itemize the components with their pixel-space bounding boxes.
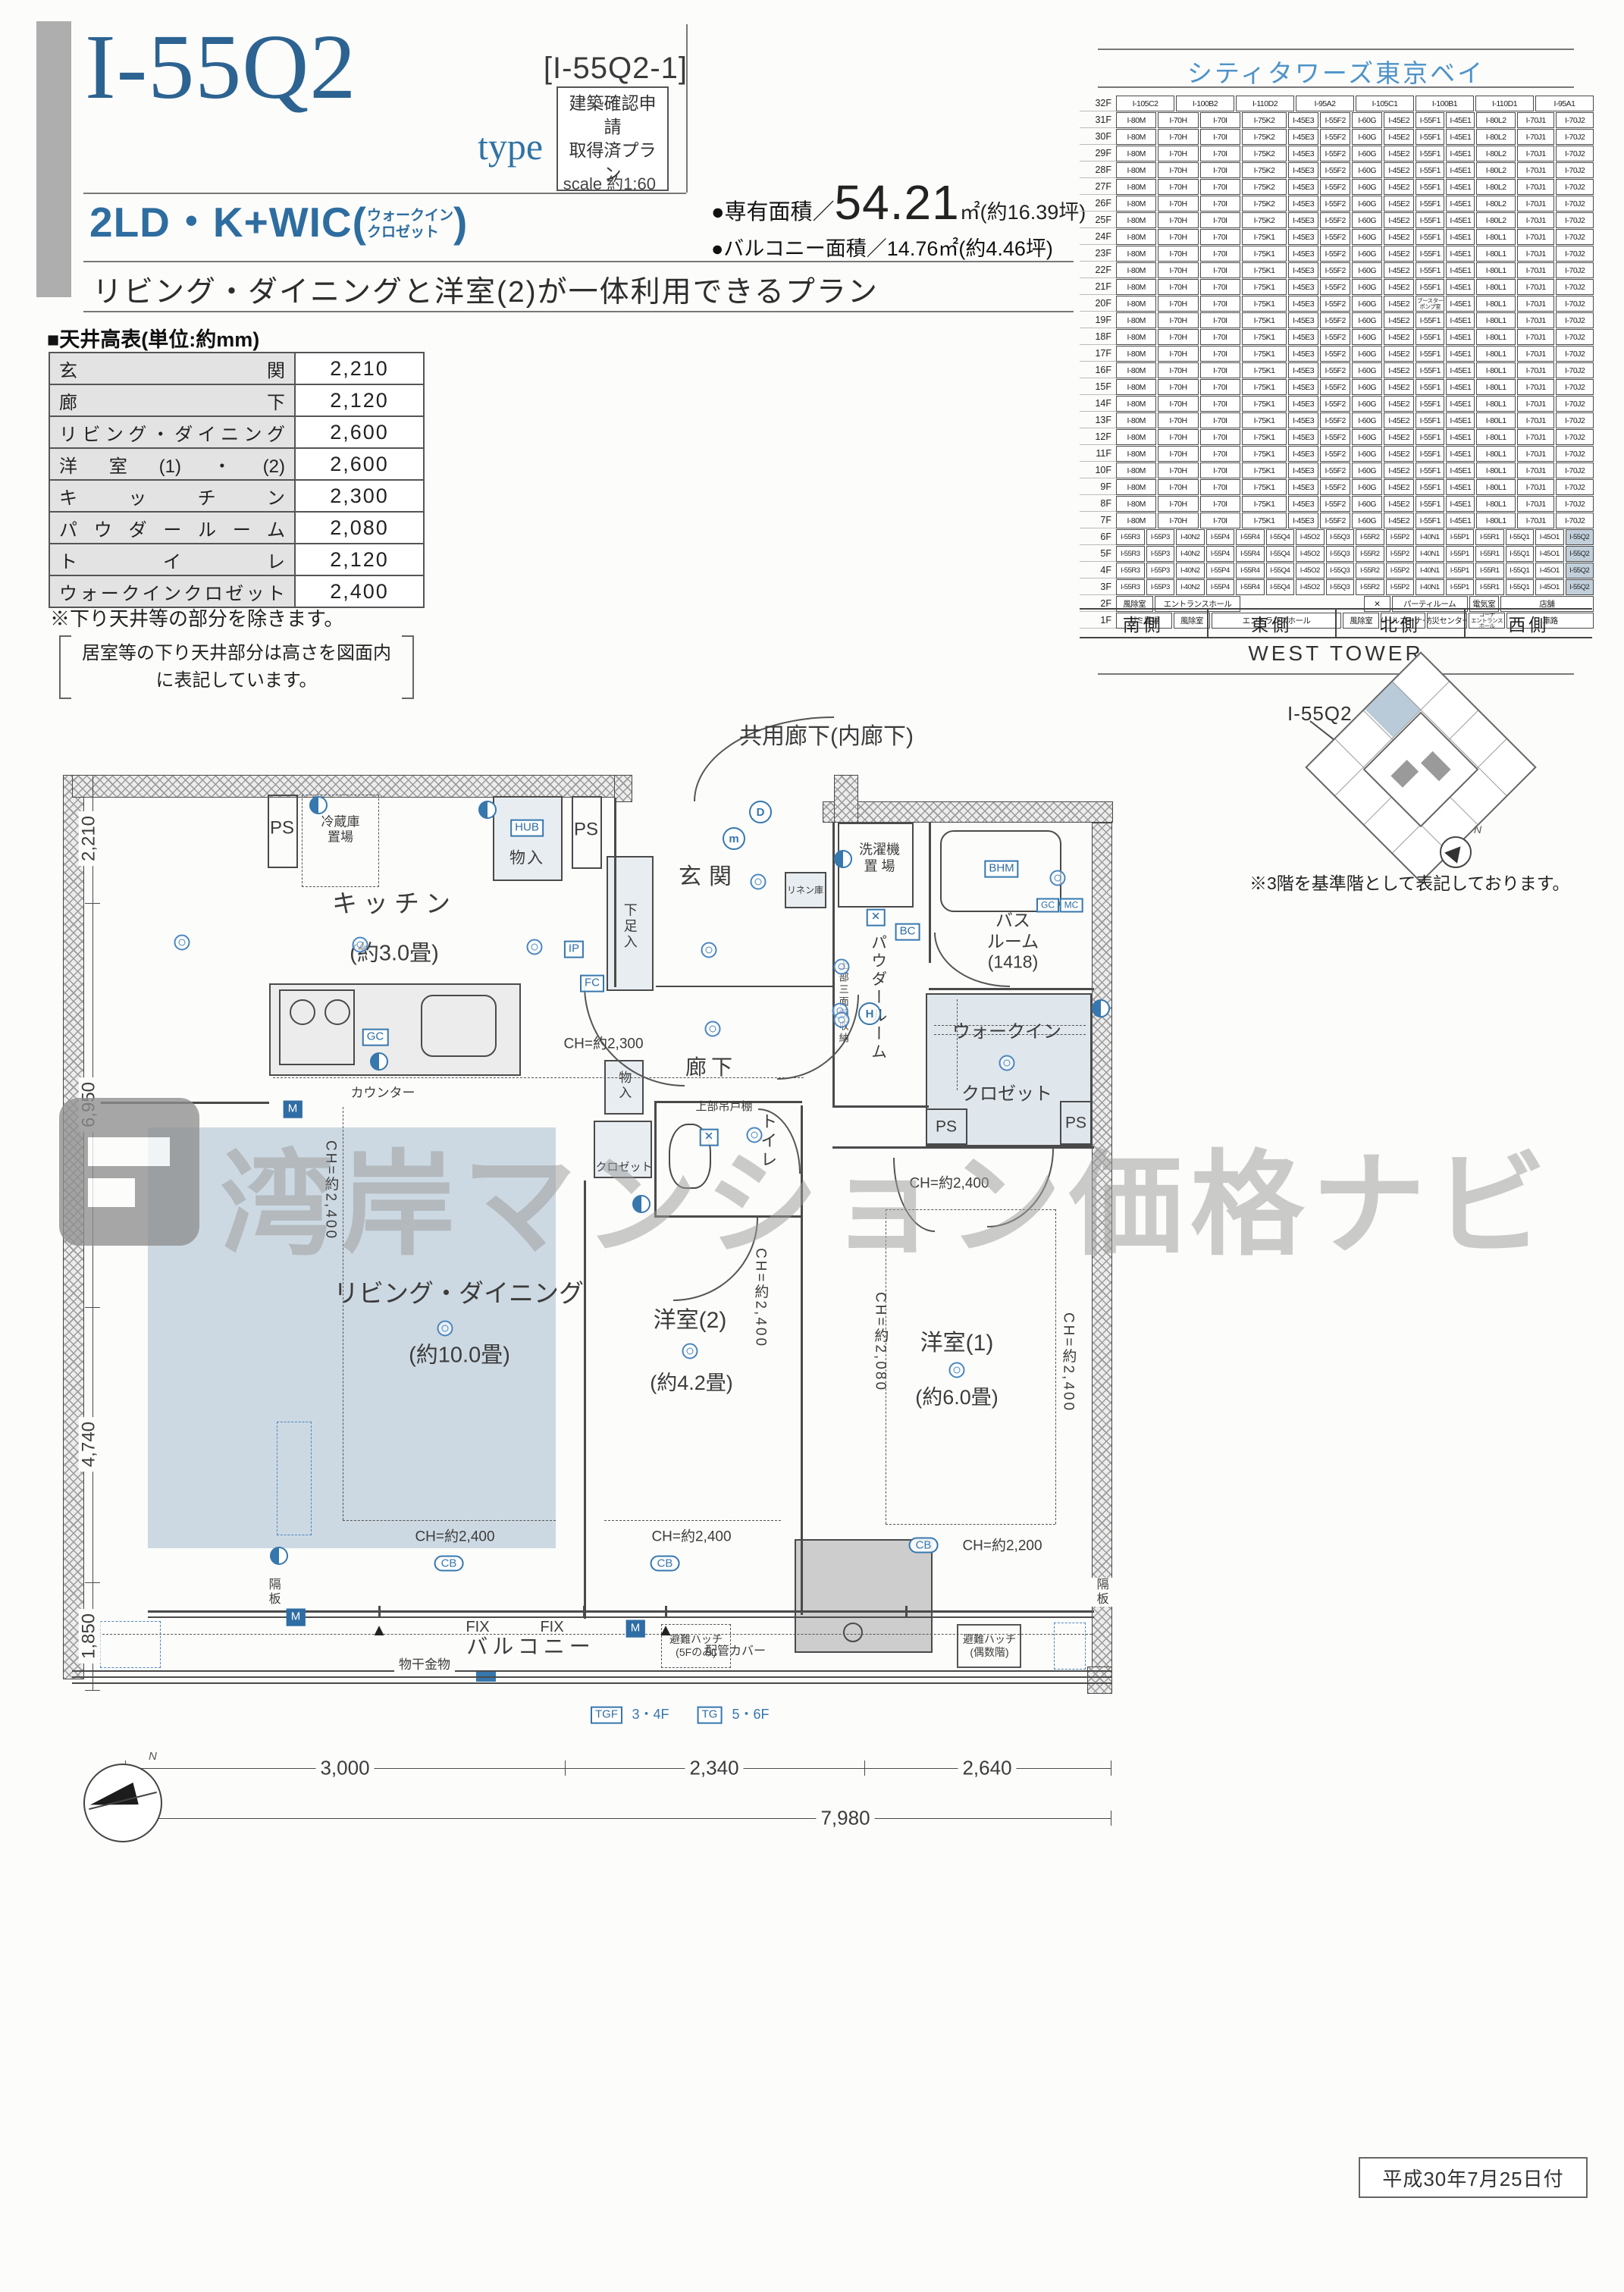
electric-outlet-icon (478, 801, 497, 819)
plan-label: 上部吊戸棚 (695, 1100, 752, 1114)
burner (324, 999, 350, 1025)
plan-label: パウダールーム (868, 934, 887, 1061)
plan-label: ▲ (371, 1620, 387, 1640)
plan-line (125, 1818, 1111, 1819)
plan-label: 物入 (616, 1071, 631, 1101)
burner (290, 999, 315, 1025)
plan-label: CH=約2,200 (962, 1538, 1042, 1556)
plan-line (654, 1101, 657, 1218)
plan-label: 3・4F (632, 1707, 669, 1723)
downlight-icon (999, 1055, 1015, 1071)
equipment-label-box: GC (1036, 898, 1059, 913)
plan-label: (約4.2畳) (650, 1371, 733, 1395)
downlight-icon (1050, 870, 1066, 886)
downlight-icon (527, 939, 543, 955)
equipment-label-box: TG (698, 1707, 723, 1724)
plan-dashed-line (1055, 1209, 1056, 1524)
equipment-label-box: HUB (510, 820, 544, 837)
downlight-icon (353, 937, 368, 953)
plan-label: CH=約2,400 (651, 1529, 731, 1547)
door-swing-arc (893, 1158, 935, 1232)
electric-outlet-icon (309, 796, 328, 814)
plan-line (72, 1670, 1112, 1672)
plan-label: トイレ (757, 1113, 777, 1170)
wall-hatched (1092, 823, 1112, 1678)
plan-label: 下足入 (621, 903, 638, 951)
plan-dashed-line (100, 1621, 161, 1668)
plan-label: PS (936, 1117, 957, 1136)
plan-dashed-line (604, 1520, 781, 1521)
equipment-label-box: GC (362, 1029, 389, 1046)
plan-line (85, 903, 100, 904)
plan-label: 3,000 (315, 1756, 374, 1779)
hub-closet (493, 796, 563, 881)
watermark-logo (59, 1098, 199, 1246)
equipment-label-box: FC (580, 975, 604, 992)
cb-symbol: CB (909, 1538, 939, 1554)
plan-line (1111, 1811, 1111, 1826)
plan-line (832, 1146, 1094, 1149)
plan-label: 2,640 (958, 1756, 1016, 1779)
plan-line (832, 1105, 929, 1108)
electric-outlet-icon (834, 850, 852, 868)
living-dining-shade (148, 1127, 556, 1548)
cb-symbol: CB (651, 1556, 680, 1572)
electric-outlet-icon (1092, 999, 1110, 1017)
downlight-icon (682, 1344, 698, 1359)
plan-label: 避難ハッチ (偶数階) (963, 1633, 1016, 1659)
downlight-icon (701, 942, 717, 958)
plan-label: CH=約2,400 (751, 1248, 769, 1348)
plan-dashed-line (343, 1107, 343, 1520)
plan-line (583, 1606, 585, 1616)
plan-label: PS (574, 820, 598, 842)
plan-label: 洗濯機 置 場 (859, 842, 900, 874)
equipment-label-box: MC (1060, 898, 1083, 913)
plan-dashed-line (277, 1422, 312, 1535)
equipment-label-box: BHM (984, 861, 1018, 878)
balcony-circle (843, 1623, 863, 1642)
plan-label: 物入 (509, 848, 544, 867)
meter-box: M (284, 1101, 303, 1118)
floor-plan: 共用廊下(内廊下)キッチン(約3.0畳)冷蔵庫 置場PS物入PS玄関下足入カウン… (0, 0, 1624, 2292)
downlight-icon (437, 1321, 453, 1337)
downlight-icon (747, 1127, 763, 1143)
equipment-label-box: IP (564, 941, 584, 958)
electric-outlet-icon (270, 1547, 288, 1565)
plan-label: バルコニー (466, 1634, 594, 1660)
plan-label: クロゼット (961, 1084, 1052, 1106)
equipment-label-box: TGF (591, 1707, 622, 1724)
plan-label: 洋室(1) (920, 1330, 994, 1357)
wall-hatched (614, 775, 632, 802)
plan-label: バス ルーム (1418) (987, 911, 1039, 974)
electric-outlet-icon (370, 1052, 388, 1071)
plan-label: リネン庫 (787, 885, 823, 895)
plan-line (85, 1582, 100, 1583)
meter-box: M (626, 1620, 645, 1638)
plan-label: (約6.0畳) (915, 1385, 999, 1409)
plan-dashed-line (886, 1524, 1055, 1525)
plan-compass (83, 1764, 162, 1842)
plan-label: PS (270, 818, 294, 840)
downlight-icon (834, 959, 850, 975)
plan-label: クロゼット (595, 1161, 652, 1174)
plan-dashed-line (343, 1520, 556, 1521)
plan-label: 冷蔵庫 置場 (321, 815, 360, 846)
plan-label: リビング・ダイニング (334, 1278, 584, 1309)
plan-label: 2,340 (685, 1756, 743, 1779)
plan-label: CH=約2,400 (321, 1140, 339, 1240)
plan-label: 隔板 (1089, 1578, 1112, 1607)
plan-dashed-line (957, 999, 958, 1090)
downlight-icon (705, 1021, 721, 1037)
sink (421, 995, 497, 1057)
meter-box: M (287, 1609, 306, 1626)
plan-line (801, 1105, 803, 1615)
plan-label: 4,740 (79, 1417, 101, 1472)
circled-letter-symbol: m (723, 827, 745, 850)
plan-label: CH=約2,080 (871, 1292, 889, 1392)
equipment-label-box: ✕ (700, 1129, 719, 1146)
circled-letter-symbol: D (749, 801, 772, 823)
plan-label: CH=約2,300 (563, 1036, 643, 1054)
plan-line (85, 1307, 100, 1308)
downlight-icon (834, 1012, 850, 1028)
plan-label: 避難ハッチ (5Fのみ) (669, 1633, 723, 1659)
circled-letter-symbol: H (858, 1002, 881, 1025)
plan-label: CH=約2,400 (1059, 1312, 1077, 1413)
plan-label: (約10.0畳) (409, 1343, 510, 1369)
duct-space (795, 1539, 933, 1653)
plan-label: カウンター (351, 1086, 415, 1101)
plan-line (584, 1180, 586, 1619)
plan-line (929, 823, 931, 963)
electric-outlet-icon (632, 1195, 651, 1213)
date-stamp: 平成30年7月25日付 (1359, 2157, 1588, 2198)
plan-label: 1,850 (79, 1609, 101, 1663)
compass-n-label: N (149, 1750, 157, 1763)
plan-label: CH=約2,400 (909, 1176, 989, 1193)
plan-label: 物干金物 (394, 1657, 455, 1673)
plan-line (905, 1606, 908, 1616)
plan-line (665, 1606, 667, 1616)
downlight-icon (949, 1362, 965, 1378)
plan-line (864, 1761, 865, 1776)
plan-label: CH=約2,400 (415, 1529, 494, 1547)
plan-line (72, 1682, 1112, 1684)
plan-line (85, 775, 100, 776)
plan-label: 2,210 (79, 811, 101, 866)
plan-label: PS (1065, 1113, 1086, 1132)
door-swing-arc (673, 1218, 758, 1301)
wall-hatched (834, 775, 858, 823)
plan-label: 洋室(2) (654, 1307, 727, 1334)
wall-hatched (823, 801, 1113, 823)
plan-line (929, 988, 1094, 990)
plan-line (1111, 1761, 1111, 1776)
plan-label: ウォークイン (952, 1022, 1061, 1044)
plan-line (378, 1606, 381, 1616)
plan-label: ▲ (657, 1620, 674, 1640)
plan-label: 共用廊下(内廊下) (739, 723, 914, 751)
equipment-label-box: BC (895, 923, 920, 941)
plan-label: 玄関 (679, 864, 739, 891)
plan-label: キッチン (332, 889, 456, 919)
cb-symbol: CB (434, 1556, 464, 1572)
door-swing-arc (987, 1149, 1054, 1228)
plan-label: 隔板 (261, 1578, 284, 1607)
plan-line (614, 798, 616, 987)
plan-label: 7,980 (816, 1806, 874, 1830)
plan-label: 廊下 (685, 1055, 737, 1080)
plan-label: 5・6F (732, 1707, 769, 1723)
plan-dashed-line (1054, 1623, 1086, 1670)
plan-line (565, 1761, 566, 1776)
downlight-icon (174, 935, 190, 951)
equipment-label-box: ✕ (867, 909, 886, 927)
downlight-icon (751, 874, 767, 890)
plan-line (85, 1690, 100, 1691)
plan-line (72, 1676, 1112, 1678)
